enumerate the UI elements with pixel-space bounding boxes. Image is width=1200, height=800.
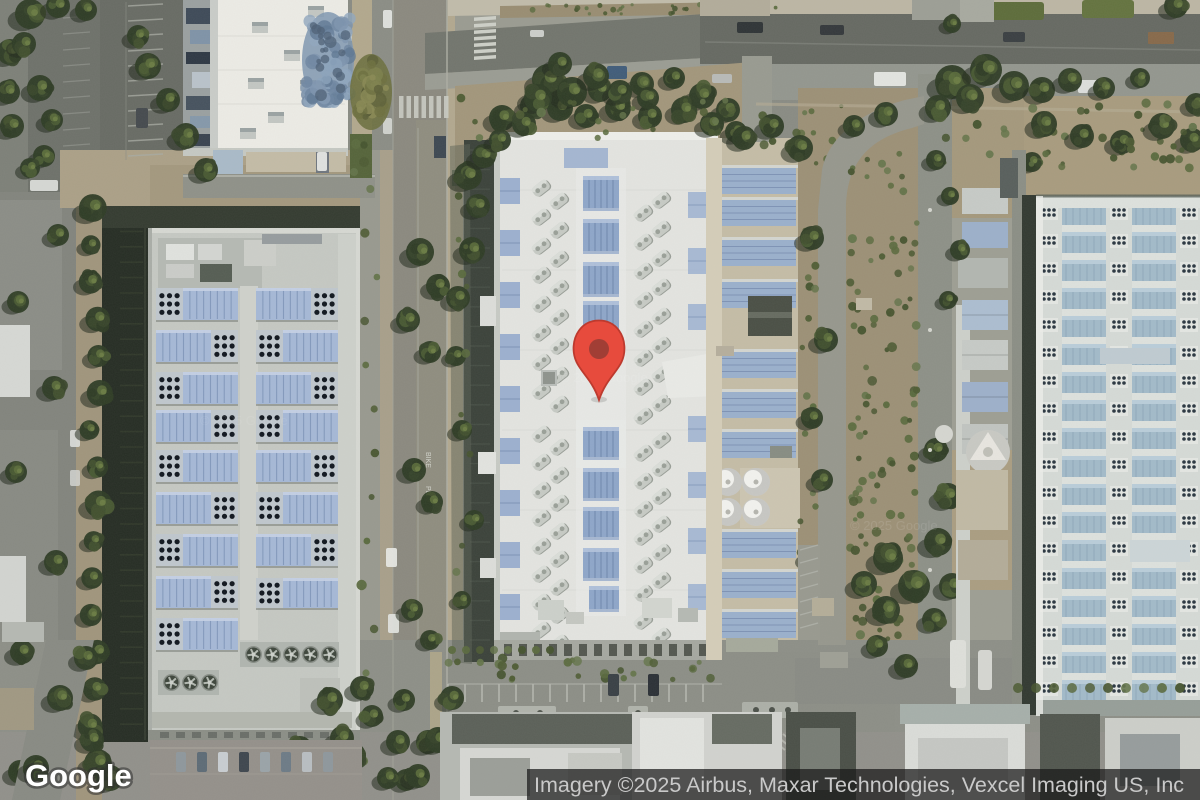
svg-text:Google: Google (25, 758, 132, 793)
svg-text:Imagery ©2025 Airbus, Maxar Te: Imagery ©2025 Airbus, Maxar Technologies… (534, 773, 1184, 797)
